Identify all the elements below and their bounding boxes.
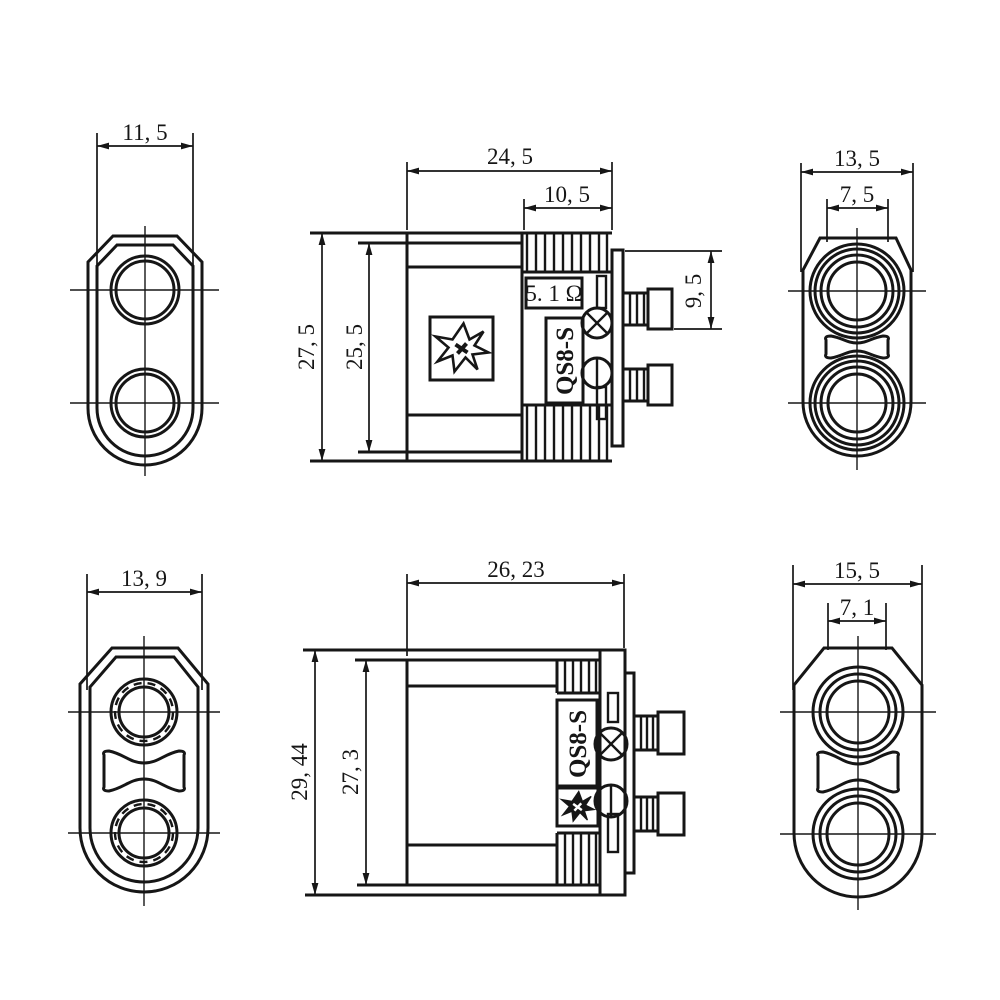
dim-label: 9, 5: [681, 274, 706, 309]
phillips-screw-icon: [582, 308, 612, 338]
view-top-right-front-face: 13, 5 7, 5: [788, 146, 926, 470]
dim-label: 26, 23: [487, 557, 545, 582]
technical-drawing-canvas: 11, 5 24, 5 10, 5 27, 5: [0, 0, 1000, 1000]
dim-label: 11, 5: [122, 120, 167, 145]
mounting-plate: [612, 250, 623, 446]
dim-overall-height-29-44: 29, 44: [287, 650, 315, 895]
dim-label: 27, 3: [338, 749, 363, 795]
dim-label: 29, 44: [287, 743, 312, 801]
dim-body-height-25-5: 25, 5: [342, 243, 369, 452]
dim-label: 13, 9: [121, 566, 167, 591]
dim-grip-width-10-5: 10, 5: [524, 182, 612, 230]
grip-rib-lines-top: [522, 234, 612, 272]
grip-rib-lines-bottom: [522, 405, 612, 460]
grip-rib-lines-bottom: [557, 833, 600, 885]
view-bottom-middle-side: 26, 23 29, 44 27, 3: [287, 557, 684, 895]
centerlines: [70, 226, 219, 476]
dim-overall-width-26-23: 26, 23: [407, 557, 624, 656]
dim-hole-pitch-7-1: 7, 1: [828, 595, 886, 650]
resistor-label: 5. 1 Ω: [525, 281, 582, 306]
dim-overall-height-27-5: 27, 5: [294, 233, 322, 461]
dim-label: 10, 5: [544, 182, 590, 207]
view-top-left-rear-face: 11, 5: [70, 120, 219, 476]
bullet-pin-bottom: [634, 793, 684, 835]
screw-slot: [597, 276, 606, 308]
drawing-page: 11, 5 24, 5 10, 5 27, 5: [0, 0, 1000, 1000]
view-top-middle-side: 24, 5 10, 5 27, 5 25, 5: [294, 144, 722, 461]
bullet-pin-bottom: [623, 365, 672, 405]
centerlines: [788, 228, 926, 470]
model-label: QS8-S: [565, 710, 592, 778]
dim-label: 27, 5: [294, 324, 319, 370]
screw-slot: [608, 814, 618, 852]
dim-label: 24, 5: [487, 144, 533, 169]
dim-label: 15, 5: [834, 558, 880, 583]
dim-body-height-27-3: 27, 3: [338, 660, 366, 885]
screw-slot: [608, 693, 618, 722]
model-label: QS8-S: [552, 327, 579, 395]
view-bottom-right-front-face: 15, 5 7, 1: [780, 558, 936, 910]
bullet-pin-top: [634, 712, 684, 754]
mounting-plate: [600, 650, 625, 895]
dim-label: 13, 5: [834, 146, 880, 171]
grip-rib-lines-top: [557, 660, 600, 693]
dim-label: 7, 1: [840, 595, 875, 620]
view-bottom-left-rear-face: 13, 9: [68, 566, 220, 906]
bullet-pin-top: [623, 289, 672, 329]
dim-label: 25, 5: [342, 324, 367, 370]
dim-label: 7, 5: [840, 182, 875, 207]
slotted-screw-icon: [582, 358, 612, 388]
